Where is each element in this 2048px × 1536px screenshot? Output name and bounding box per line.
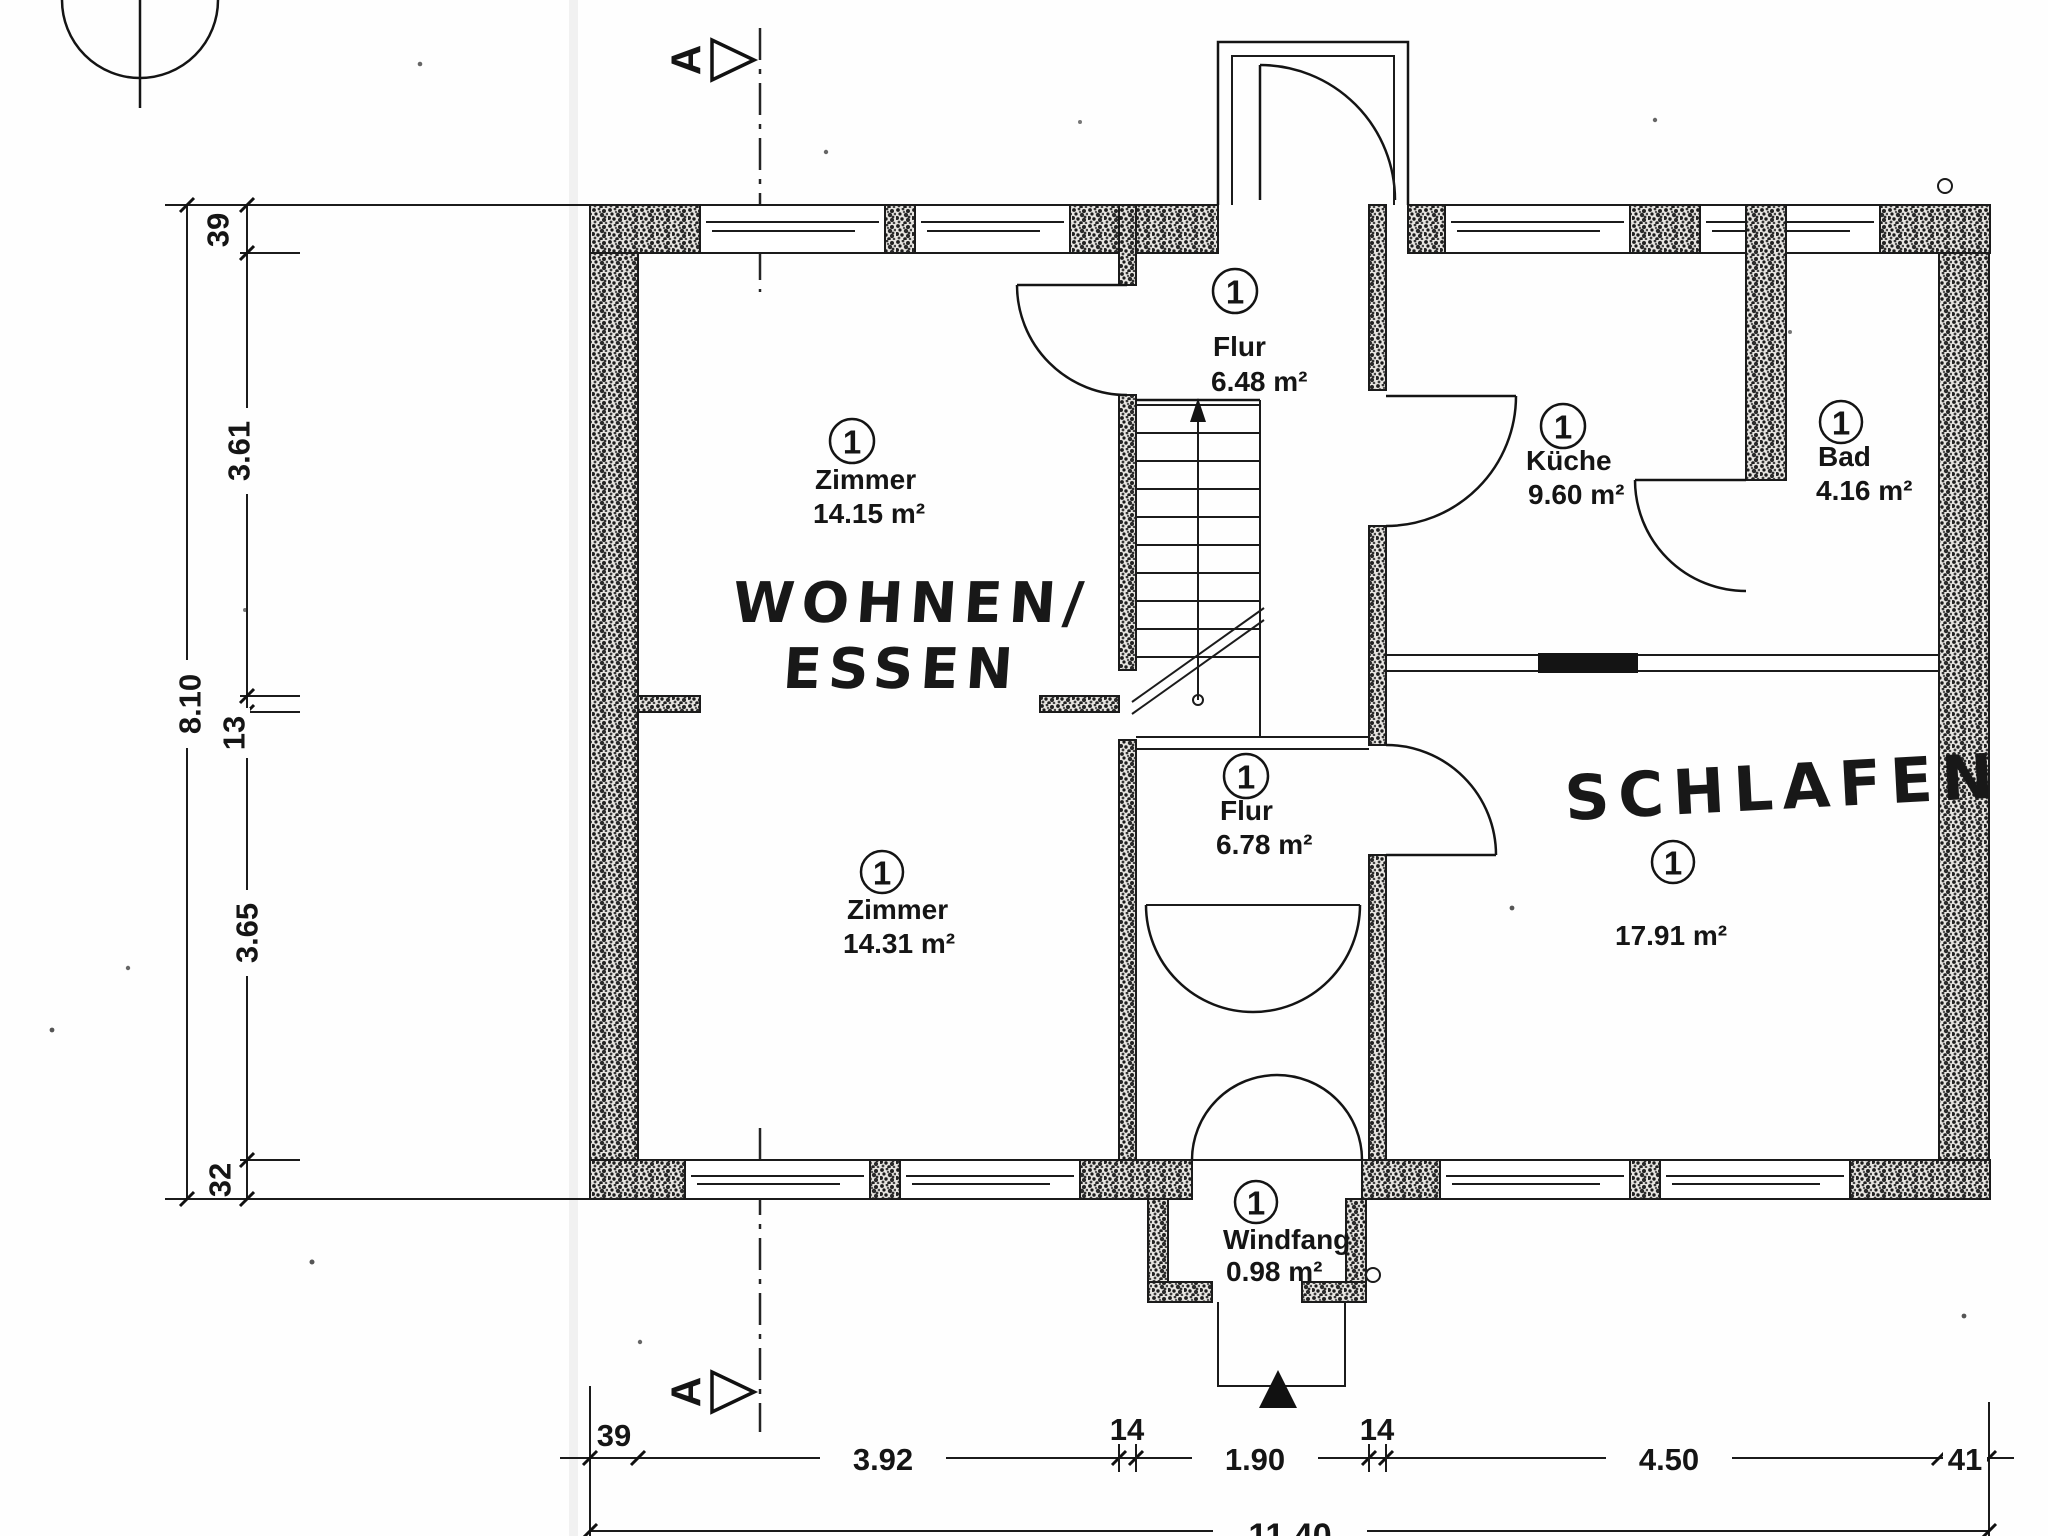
section-letter-top: A [663,45,710,75]
room-name: Zimmer [847,894,948,925]
dimension-chain-left: 8.10 39 3.61 13 3.65 32 [165,198,592,1206]
room-name: Zimmer [815,464,916,495]
room-name: Windfang [1223,1224,1350,1255]
dim-bottom-2: 14 [1110,1412,1145,1447]
entrance-porch [1218,42,1408,205]
entrance-triangle-icon [1259,1370,1297,1408]
handwritten-essen: ESSEN [781,637,1022,702]
schlafen-wall [1386,655,1939,671]
dim-bottom-3: 1.90 [1225,1442,1285,1477]
svg-text:1: 1 [1226,274,1244,311]
room-label-zimmer-bottom: 1 Zimmer 14.31 m² [843,851,955,959]
window [1440,1160,1630,1199]
dim-bottom-6: 41 [1948,1442,1982,1477]
room-label-kueche: 1 Küche 9.60 m² [1526,404,1625,510]
room-name: Küche [1526,445,1612,476]
window [1700,205,1880,253]
windows [685,205,1880,1199]
window [915,205,1070,253]
svg-text:1: 1 [1832,405,1850,442]
room-label-bad: 1 Bad 4.16 m² [1816,401,1913,506]
svg-text:1: 1 [1237,759,1255,796]
section-triangle-icon [712,1372,754,1412]
double-door-arc [1146,905,1360,1012]
window [1445,205,1630,253]
room-area: 6.78 m² [1216,829,1313,860]
kueche-bad-wall [1746,205,1786,480]
dimension-chain-bottom: 39 3.92 14 1.90 14 4.50 41 11.40 [560,1386,2014,1536]
window [900,1160,1080,1199]
svg-text:1: 1 [873,855,891,892]
stairs [1132,398,1264,737]
dim-left-4: 32 [203,1163,238,1197]
dim-bottom-4: 14 [1360,1412,1395,1447]
handwritten-wohnen: WOHNEN/ [731,571,1093,636]
dim-left-3: 3.65 [230,903,265,963]
room-area: 6.48 m² [1211,366,1308,397]
dim-bottom-total: 11.40 [1248,1517,1331,1536]
room-label-schlafen: 1 17.91 m² [1615,841,1727,951]
dim-bottom-5: 4.50 [1639,1442,1699,1477]
dim-bottom-0: 39 [597,1418,631,1453]
window [700,205,885,253]
room-label-zimmer-top: 1 Zimmer 14.15 m² [813,419,925,529]
svg-text:1: 1 [1554,409,1572,446]
dim-left-1: 3.61 [222,421,257,481]
door-arc [1017,285,1127,395]
room-label-windfang: 1 Windfang 0.98 m² [1223,1181,1350,1287]
door-arc [1386,396,1516,526]
room-name: Flur [1213,331,1266,362]
dim-left-0: 39 [201,213,236,247]
room-area: 4.16 m² [1816,475,1913,506]
handwritten-schlafen: SCHLAFEN [1563,739,2004,835]
svg-text:1: 1 [1247,1185,1265,1222]
reference-dots [1366,179,1952,1282]
room-label-flur-top: 1 Flur 6.48 m² [1211,269,1308,397]
dim-bottom-1: 3.92 [853,1442,913,1477]
scanned-floorplan-page: A A [0,0,2048,1536]
floorplan-svg: A A [0,0,2048,1536]
room-area: 14.15 m² [813,498,925,529]
room-name: Bad [1818,441,1871,472]
door-arc [1635,480,1746,591]
room-area: 9.60 m² [1528,479,1625,510]
dim-left-total: 8.10 [173,674,208,734]
right-wall [1939,205,1989,1199]
room-name: Flur [1220,795,1273,826]
room-area: 0.98 m² [1226,1256,1323,1287]
handwritten-labels: WOHNEN/ ESSEN SCHLAFEN [731,571,2005,835]
stair-arrow-icon [1190,398,1206,422]
window [1660,1160,1850,1199]
room-label-flur-mid: 1 Flur 6.78 m² [1216,754,1313,860]
section-letter-bottom: A [663,1377,710,1407]
left-wall [590,205,638,1199]
svg-text:1: 1 [843,424,861,461]
reference-circle [62,0,218,108]
section-triangle-icon [712,40,754,80]
window [685,1160,870,1199]
entry-porch [1218,1302,1345,1408]
svg-text:1: 1 [1664,845,1682,882]
entrance-door-arc [1260,65,1395,200]
door-arc [1386,745,1496,855]
room-area: 17.91 m² [1615,920,1727,951]
room-area: 14.31 m² [843,928,955,959]
dim-left-2: 13 [217,716,252,750]
double-door-arc [1192,1075,1362,1160]
